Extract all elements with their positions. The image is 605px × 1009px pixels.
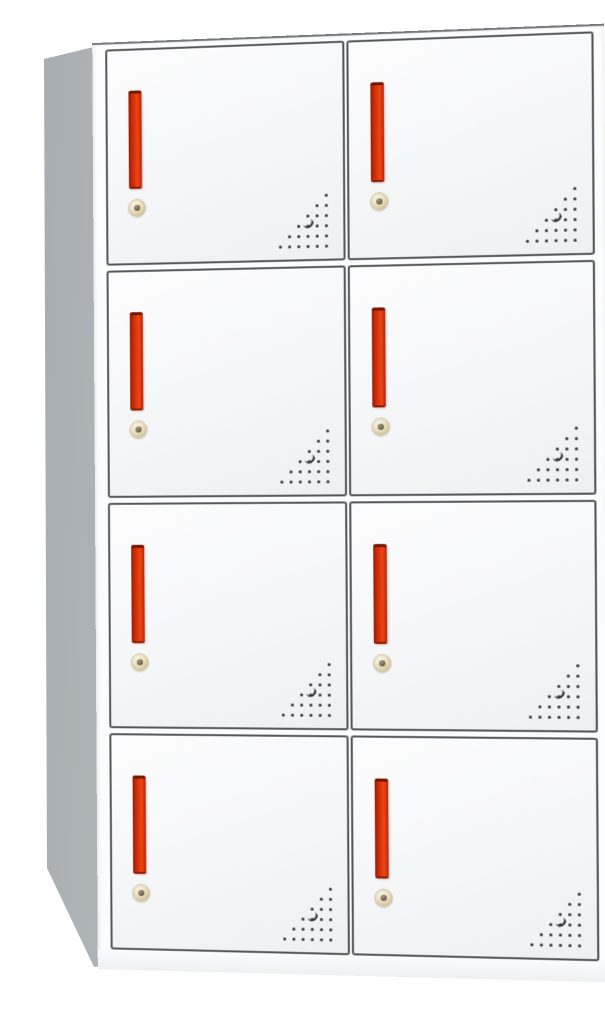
keyhole-icon (376, 198, 382, 204)
vent-row (282, 714, 331, 717)
door-handle (133, 775, 147, 874)
vent-hole-icon (556, 478, 559, 481)
vent-hole-icon (325, 244, 328, 247)
door-handle (131, 545, 145, 643)
vent-hole-icon (537, 479, 540, 482)
vent-hole-icon (575, 458, 578, 461)
vent-hole-icon (292, 938, 295, 941)
vent-hole-icon (308, 450, 311, 453)
vent-hole-icon (328, 673, 331, 676)
vent-hole-icon (320, 928, 323, 931)
vent-hole-icon (526, 240, 529, 243)
vent-hole-icon (329, 928, 332, 931)
vent-hole-icon (326, 460, 329, 463)
vent-hole-icon (538, 705, 541, 708)
vent-hole-icon (325, 194, 328, 197)
door-lock (373, 654, 392, 672)
vent-hole-icon (288, 245, 291, 248)
vent-hole-icon (300, 704, 303, 707)
vent-hole-icon (578, 934, 581, 937)
vent-hole-icon (564, 198, 567, 201)
vent-hole-icon (529, 716, 532, 719)
vent-hole-icon (568, 913, 571, 916)
vent-hole-icon (578, 913, 581, 916)
vent-hole-icon (538, 716, 541, 719)
vent-hole-icon (317, 450, 320, 453)
vent-row (529, 716, 580, 720)
vent-hole-icon (559, 933, 562, 936)
keyhole-icon (381, 895, 387, 901)
vent-hole-icon (568, 944, 571, 947)
vent-row (282, 703, 331, 706)
vent-row (282, 683, 331, 686)
vent-hole-icon (279, 246, 282, 249)
vent-hole-icon (300, 714, 303, 717)
vent-hole-icon (565, 447, 568, 450)
vent-hole-icon (548, 716, 551, 719)
vent-hole-icon (299, 470, 302, 473)
vent-hole-icon (567, 675, 570, 678)
vent-large-hole-icon (553, 452, 564, 462)
vent-row (279, 194, 328, 198)
vent-hole-icon (328, 683, 331, 686)
vent-hole-icon (564, 208, 567, 211)
vent-hole-icon (567, 685, 570, 688)
vent-hole-icon (297, 245, 300, 248)
vent-hole-icon (316, 235, 319, 238)
vent-row (526, 228, 577, 232)
vent-hole-icon (317, 460, 320, 463)
vent-hole-icon (306, 235, 309, 238)
vent-hole-icon (564, 218, 567, 221)
vent-hole-icon (546, 478, 549, 481)
vent-row (527, 437, 578, 441)
vent-hole-icon (325, 234, 328, 237)
vent-hole-icon (540, 943, 543, 946)
vent-hole-icon (565, 468, 568, 471)
vent-perforations (526, 180, 577, 243)
vent-hole-icon (568, 903, 571, 906)
vent-hole-icon (554, 239, 557, 242)
vent-hole-icon (576, 675, 579, 678)
keyhole-icon (135, 426, 141, 432)
vent-hole-icon (328, 694, 331, 697)
vent-hole-icon (325, 214, 328, 217)
vent-hole-icon (559, 944, 562, 947)
vent-hole-icon (326, 429, 329, 432)
vent-hole-icon (535, 239, 538, 242)
keyhole-icon (137, 659, 143, 665)
vent-hole-icon (546, 458, 549, 461)
vent-hole-icon (326, 440, 329, 443)
vent-perforations (530, 884, 581, 947)
vent-perforations (527, 419, 578, 481)
vent-row (279, 214, 328, 218)
vent-hole-icon (309, 714, 312, 717)
vent-hole-icon (329, 908, 332, 911)
vent-hole-icon (573, 208, 576, 211)
vent-hole-icon (320, 918, 323, 921)
vent-hole-icon (556, 447, 559, 450)
vent-hole-icon (556, 468, 559, 471)
vent-hole-icon (297, 235, 300, 238)
vent-hole-icon (557, 705, 560, 708)
vent-hole-icon (317, 480, 320, 483)
vent-hole-icon (328, 663, 331, 666)
vent-hole-icon (573, 197, 576, 200)
vent-hole-icon (573, 228, 576, 231)
vent-hole-icon (549, 923, 552, 926)
vent-perforations (283, 880, 333, 942)
vent-hole-icon (564, 228, 567, 231)
vent-row (283, 927, 332, 931)
vent-row (527, 427, 578, 431)
vent-row (282, 673, 331, 676)
keyhole-icon (134, 205, 140, 211)
vent-hole-icon (576, 706, 579, 709)
vent-hole-icon (320, 938, 323, 941)
vent-hole-icon (283, 937, 286, 940)
vent-hole-icon (575, 427, 578, 430)
vent-hole-icon (318, 673, 321, 676)
door-handle (128, 90, 142, 189)
vent-row (280, 440, 329, 444)
vent-hole-icon (320, 908, 323, 911)
door-r4-c2 (351, 735, 600, 961)
vent-hole-icon (567, 706, 570, 709)
vent-hole-icon (565, 458, 568, 461)
vent-row (526, 187, 577, 191)
door-handle (370, 82, 384, 182)
vent-large-hole-icon (308, 912, 318, 922)
vent-hole-icon (549, 933, 552, 936)
vent-large-hole-icon (305, 454, 315, 464)
vent-large-hole-icon (556, 917, 567, 928)
vent-hole-icon (535, 229, 538, 232)
vent-row (530, 912, 581, 916)
vent-hole-icon (578, 903, 581, 906)
vent-row (529, 705, 580, 708)
vent-hole-icon (311, 908, 314, 911)
vent-row (526, 197, 577, 201)
vent-row (279, 234, 328, 238)
vent-perforations (281, 656, 331, 717)
vent-hole-icon (319, 714, 322, 717)
vent-hole-icon (288, 235, 291, 238)
vent-hole-icon (578, 893, 581, 896)
door-lock (129, 420, 147, 438)
vent-hole-icon (289, 470, 292, 473)
door-r2-c1 (107, 265, 348, 497)
vent-hole-icon (530, 943, 533, 946)
vent-row (529, 674, 580, 677)
vent-hole-icon (568, 934, 571, 937)
vent-hole-icon (559, 913, 562, 916)
door-r2-c2 (348, 260, 597, 496)
keyhole-icon (378, 424, 384, 430)
vent-hole-icon (567, 695, 570, 698)
door-lock (131, 653, 149, 671)
locker-cabinet-photo (0, 0, 605, 1009)
vent-hole-icon (326, 470, 329, 473)
vent-hole-icon (297, 225, 300, 228)
vent-row (283, 887, 332, 891)
vent-hole-icon (545, 229, 548, 232)
vent-row (530, 943, 581, 947)
door-r3-c1 (108, 501, 349, 730)
vent-hole-icon (300, 693, 303, 696)
vent-hole-icon (302, 938, 305, 941)
vent-row (280, 480, 329, 483)
vent-row (530, 933, 581, 937)
vent-hole-icon (326, 450, 329, 453)
vent-perforations (279, 187, 329, 249)
vent-hole-icon (328, 704, 331, 707)
vent-hole-icon (308, 480, 311, 483)
vent-row (283, 937, 332, 941)
vent-hole-icon (308, 470, 311, 473)
vent-hole-icon (574, 239, 577, 242)
vent-row (281, 663, 330, 666)
vent-hole-icon (292, 927, 295, 930)
vent-hole-icon (537, 468, 540, 471)
vent-row (280, 470, 329, 473)
vent-large-hole-icon (306, 687, 316, 697)
vent-hole-icon (557, 685, 560, 688)
vent-hole-icon (307, 245, 310, 248)
vent-hole-icon (316, 214, 319, 217)
vent-hole-icon (565, 478, 568, 481)
door-r1-c1 (105, 41, 345, 266)
door-lock (128, 199, 146, 218)
vent-row (279, 204, 328, 208)
vent-hole-icon (329, 898, 332, 901)
vent-hole-icon (548, 695, 551, 698)
vent-hole-icon (317, 440, 320, 443)
cabinet-front-face (92, 24, 605, 981)
vent-row (283, 897, 332, 901)
vent-hole-icon (291, 714, 294, 717)
keyhole-icon (379, 660, 385, 666)
vent-hole-icon (573, 187, 576, 190)
vent-hole-icon (325, 204, 328, 207)
vent-hole-icon (578, 924, 581, 927)
vent-hole-icon (291, 703, 294, 706)
vent-hole-icon (315, 204, 318, 207)
vent-hole-icon (306, 214, 309, 217)
vent-hole-icon (575, 437, 578, 440)
vent-hole-icon (527, 479, 530, 482)
vent-hole-icon (575, 478, 578, 481)
vent-hole-icon (575, 468, 578, 471)
vent-hole-icon (567, 716, 570, 719)
vent-hole-icon (320, 898, 323, 901)
vent-row (527, 478, 578, 481)
door-handle (373, 544, 387, 644)
vent-hole-icon (564, 239, 567, 242)
vent-hole-icon (545, 239, 548, 242)
vent-hole-icon (316, 245, 319, 248)
vent-hole-icon (282, 714, 285, 717)
vent-hole-icon (546, 468, 549, 471)
vent-hole-icon (557, 716, 560, 719)
door-r3-c2 (349, 500, 598, 733)
vent-row (280, 429, 329, 433)
door-handle (372, 307, 386, 407)
vent-row (527, 447, 578, 451)
vent-hole-icon (311, 938, 314, 941)
vent-hole-icon (568, 923, 571, 926)
vent-hole-icon (325, 224, 328, 227)
vent-hole-icon (301, 928, 304, 931)
vent-row (283, 907, 332, 911)
vent-hole-icon (290, 480, 293, 483)
vent-hole-icon (311, 928, 314, 931)
vent-hole-icon (328, 714, 331, 717)
door-lock (374, 889, 393, 908)
vent-hole-icon (309, 704, 312, 707)
vent-hole-icon (578, 944, 581, 947)
vent-large-hole-icon (554, 689, 565, 699)
keyhole-icon (138, 890, 144, 896)
door-handle (375, 778, 389, 878)
vent-hole-icon (554, 208, 557, 211)
vent-perforations (529, 657, 580, 719)
vent-row (530, 892, 581, 896)
door-lock (132, 884, 150, 902)
vent-hole-icon (318, 683, 321, 686)
vent-hole-icon (549, 944, 552, 947)
door-lock (371, 417, 390, 436)
vent-row (279, 244, 328, 248)
vent-row (527, 468, 578, 472)
vent-row (280, 450, 329, 454)
vent-hole-icon (576, 685, 579, 688)
vent-row (529, 685, 580, 688)
vent-hole-icon (565, 437, 568, 440)
vent-hole-icon (545, 219, 548, 222)
vent-hole-icon (576, 664, 579, 667)
door-r1-c2 (346, 31, 595, 260)
vent-hole-icon (573, 218, 576, 221)
doors-grid (105, 31, 599, 961)
vent-row (530, 902, 581, 906)
vent-hole-icon (319, 704, 322, 707)
vent-hole-icon (316, 224, 319, 227)
vent-hole-icon (329, 918, 332, 921)
door-handle (130, 312, 144, 410)
vent-hole-icon (540, 933, 543, 936)
vent-hole-icon (575, 447, 578, 450)
vent-hole-icon (554, 229, 557, 232)
vent-hole-icon (329, 888, 332, 891)
vent-hole-icon (319, 694, 322, 697)
vent-hole-icon (329, 938, 332, 941)
vent-hole-icon (309, 683, 312, 686)
vent-hole-icon (577, 716, 580, 719)
vent-hole-icon (317, 470, 320, 473)
door-r4-c1 (109, 733, 350, 955)
vent-row (526, 208, 577, 212)
vent-hole-icon (280, 481, 283, 484)
vent-hole-icon (299, 460, 302, 463)
door-lock (370, 192, 389, 211)
vent-perforations (280, 422, 330, 483)
vent-row (529, 664, 580, 667)
vent-hole-icon (301, 918, 304, 921)
vent-hole-icon (299, 480, 302, 483)
vent-row (526, 239, 577, 243)
vent-hole-icon (576, 695, 579, 698)
vent-hole-icon (326, 480, 329, 483)
vent-hole-icon (548, 705, 551, 708)
